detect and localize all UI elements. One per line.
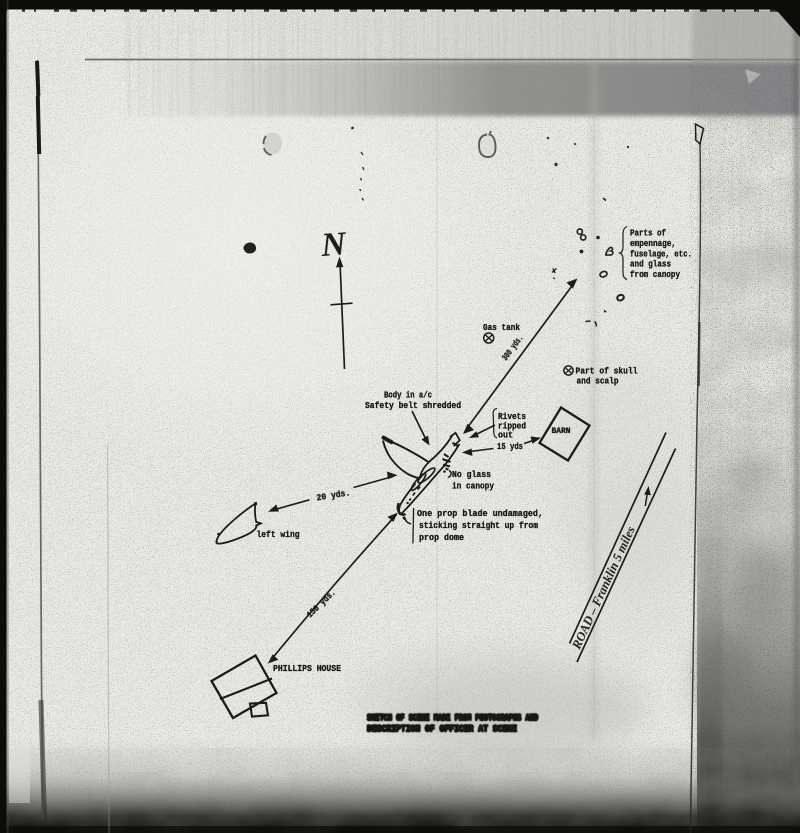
svg-text:One prop blade undamaged,: One prop blade undamaged,: [417, 508, 543, 519]
svg-text:SKETCH OF SCENE MADE FROM PHOT: SKETCH OF SCENE MADE FROM PHOTOGRAPHS AN…: [367, 714, 538, 725]
svg-text:15 yds: 15 yds: [497, 441, 523, 452]
svg-text:PHILLIPS HOUSE: PHILLIPS HOUSE: [273, 663, 341, 674]
svg-text:empennage,: empennage,: [630, 238, 676, 249]
svg-text:BARN: BARN: [552, 427, 571, 436]
svg-text:Safety belt shredded: Safety belt shredded: [365, 400, 461, 411]
svg-text:and scalp: and scalp: [577, 376, 619, 387]
svg-text:from canopy: from canopy: [630, 269, 680, 280]
svg-text:prop dome: prop dome: [419, 532, 464, 543]
svg-text:DESCRIPTION OF OFFICER AT SCEN: DESCRIPTION OF OFFICER AT SCENE: [367, 725, 517, 736]
svg-text:sticking straight up from: sticking straight up from: [419, 520, 538, 531]
svg-text:No glass: No glass: [452, 469, 491, 480]
svg-text:left wing: left wing: [257, 529, 300, 540]
svg-text:in canopy: in canopy: [452, 481, 494, 492]
svg-text:Parts of: Parts of: [630, 228, 666, 239]
svg-text:and glass: and glass: [630, 259, 671, 270]
svg-text:Gas tank: Gas tank: [483, 322, 520, 333]
svg-text:out: out: [498, 430, 513, 441]
svg-text:N: N: [319, 225, 349, 264]
svg-text:Body in a/c: Body in a/c: [384, 390, 432, 401]
